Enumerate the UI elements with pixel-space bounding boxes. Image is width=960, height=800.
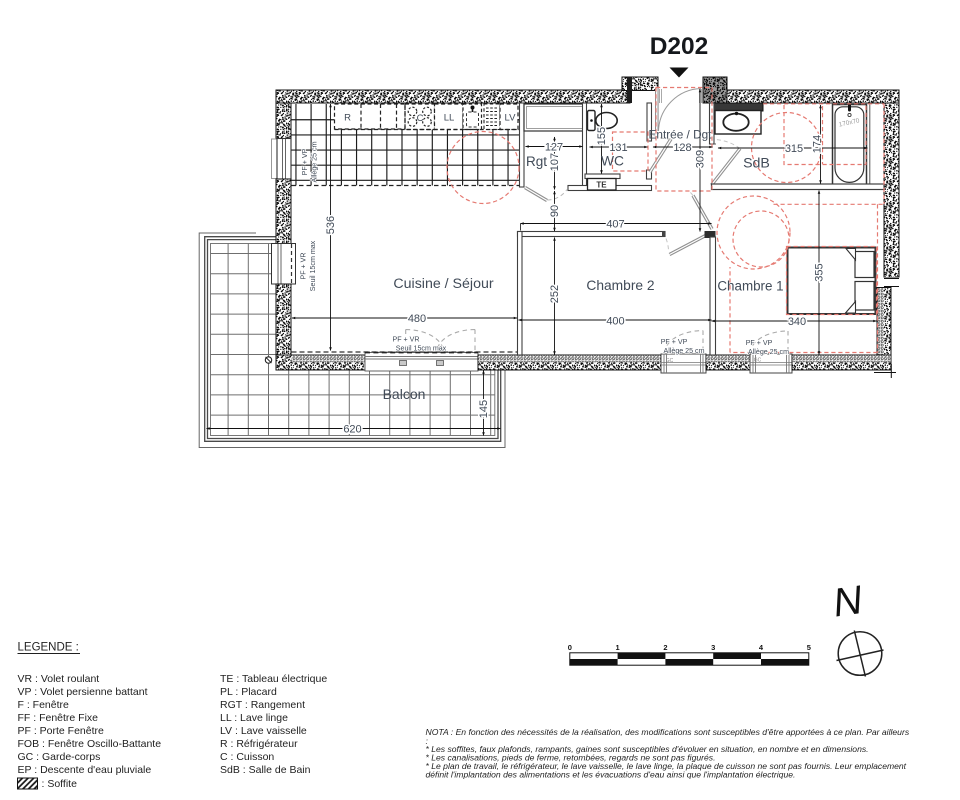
svg-text:FOB : Fenêtre Oscillo-Battante: FOB : Fenêtre Oscillo-Battante: [18, 738, 162, 750]
svg-text:340: 340: [788, 316, 806, 328]
svg-text:LL: LL: [444, 113, 455, 124]
svg-text:536: 536: [325, 216, 337, 234]
svg-text:Cuisine / Séjour: Cuisine / Séjour: [393, 276, 493, 292]
svg-text:D202: D202: [650, 33, 709, 60]
svg-text:4: 4: [759, 643, 764, 652]
svg-text:NOTA : En fonction des nécessi: NOTA : En fonction des nécessités de la …: [426, 727, 910, 737]
svg-text:315: 315: [785, 143, 803, 155]
svg-text:1: 1: [616, 643, 620, 652]
svg-text:R : Réfrigérateur: R : Réfrigérateur: [220, 738, 298, 750]
svg-text:N: N: [830, 578, 865, 626]
svg-text:Chambre 2: Chambre 2: [586, 278, 654, 293]
svg-text:LL : Lave linge: LL : Lave linge: [220, 712, 288, 724]
svg-text:PF + VP: PF + VP: [746, 339, 773, 347]
svg-text:0: 0: [568, 643, 572, 652]
svg-text:5: 5: [807, 643, 811, 652]
svg-text:GC: GC: [666, 358, 674, 364]
svg-text:480: 480: [408, 313, 426, 325]
svg-text:Allège 25 cm: Allège 25 cm: [663, 347, 704, 355]
svg-text:Entrée / Dgt: Entrée / Dgt: [649, 128, 713, 142]
svg-text:définit l'implantation des ali: définit l'implantation des alimentations…: [426, 770, 796, 780]
svg-text:GC: GC: [754, 358, 762, 364]
svg-text:309: 309: [695, 150, 707, 168]
svg-text:Seuil 15cm max: Seuil 15cm max: [309, 240, 317, 291]
svg-text:2: 2: [663, 643, 667, 652]
svg-text:F : Fenêtre: F : Fenêtre: [18, 699, 70, 711]
svg-text:400: 400: [606, 316, 624, 328]
svg-text:LV : Lave vaisselle: LV : Lave vaisselle: [220, 725, 307, 737]
svg-text:3: 3: [711, 643, 715, 652]
svg-text:VP : Volet persienne battant: VP : Volet persienne battant: [18, 686, 148, 698]
svg-text:Chambre 1: Chambre 1: [717, 279, 783, 294]
svg-text:PF + VP: PF + VP: [661, 338, 688, 346]
svg-text:C: C: [417, 113, 424, 124]
svg-text:PF + VR: PF + VR: [392, 336, 419, 344]
svg-text:620: 620: [343, 424, 361, 436]
svg-text:Balcon: Balcon: [383, 386, 426, 402]
svg-text:131: 131: [609, 142, 627, 154]
svg-text:SdB : Salle de Bain: SdB : Salle de Bain: [220, 764, 311, 776]
svg-text:EP : Descente d'eau pluviale: EP : Descente d'eau pluviale: [18, 764, 152, 776]
svg-text:LV: LV: [505, 113, 517, 124]
svg-text:GC : Garde-corps: GC : Garde-corps: [18, 751, 101, 763]
svg-text:FF : Fenêtre Fixe: FF : Fenêtre Fixe: [18, 712, 99, 724]
svg-text:PF : Porte Fenêtre: PF : Porte Fenêtre: [18, 725, 105, 737]
svg-text:TE : Tableau électrique: TE : Tableau électrique: [220, 673, 327, 685]
svg-text:107: 107: [549, 153, 561, 171]
svg-text:RGT : Rangement: RGT : Rangement: [220, 699, 305, 711]
svg-text:127: 127: [545, 142, 563, 154]
svg-text:TE: TE: [596, 181, 607, 190]
svg-text:252: 252: [549, 285, 561, 303]
svg-text:Rgt: Rgt: [526, 154, 547, 169]
svg-text:Allège 25 cm: Allège 25 cm: [311, 141, 319, 182]
svg-text:LEGENDE :: LEGENDE :: [18, 642, 79, 654]
svg-text:: Soffite: : Soffite: [42, 778, 78, 790]
svg-text:Seuil 15cm max: Seuil 15cm max: [396, 345, 447, 353]
svg-text:PF + VP: PF + VP: [301, 148, 309, 175]
svg-text:Allège 25 cm: Allège 25 cm: [748, 348, 789, 356]
svg-text:PF + VR: PF + VR: [300, 252, 308, 279]
svg-text:90: 90: [549, 205, 561, 217]
svg-text:VR : Volet roulant: VR : Volet roulant: [18, 673, 100, 685]
svg-text:R: R: [344, 113, 351, 124]
svg-text:355: 355: [814, 263, 826, 281]
svg-text:SdB: SdB: [743, 156, 770, 172]
svg-text:145: 145: [478, 400, 490, 418]
svg-text:174: 174: [812, 135, 824, 153]
svg-text:128: 128: [673, 142, 691, 154]
svg-text:C : Cuisson: C : Cuisson: [220, 751, 274, 763]
svg-text:PL : Placard: PL : Placard: [220, 686, 277, 698]
svg-text:407: 407: [606, 219, 624, 231]
svg-text:155: 155: [596, 127, 608, 145]
svg-text:WC: WC: [601, 154, 624, 169]
